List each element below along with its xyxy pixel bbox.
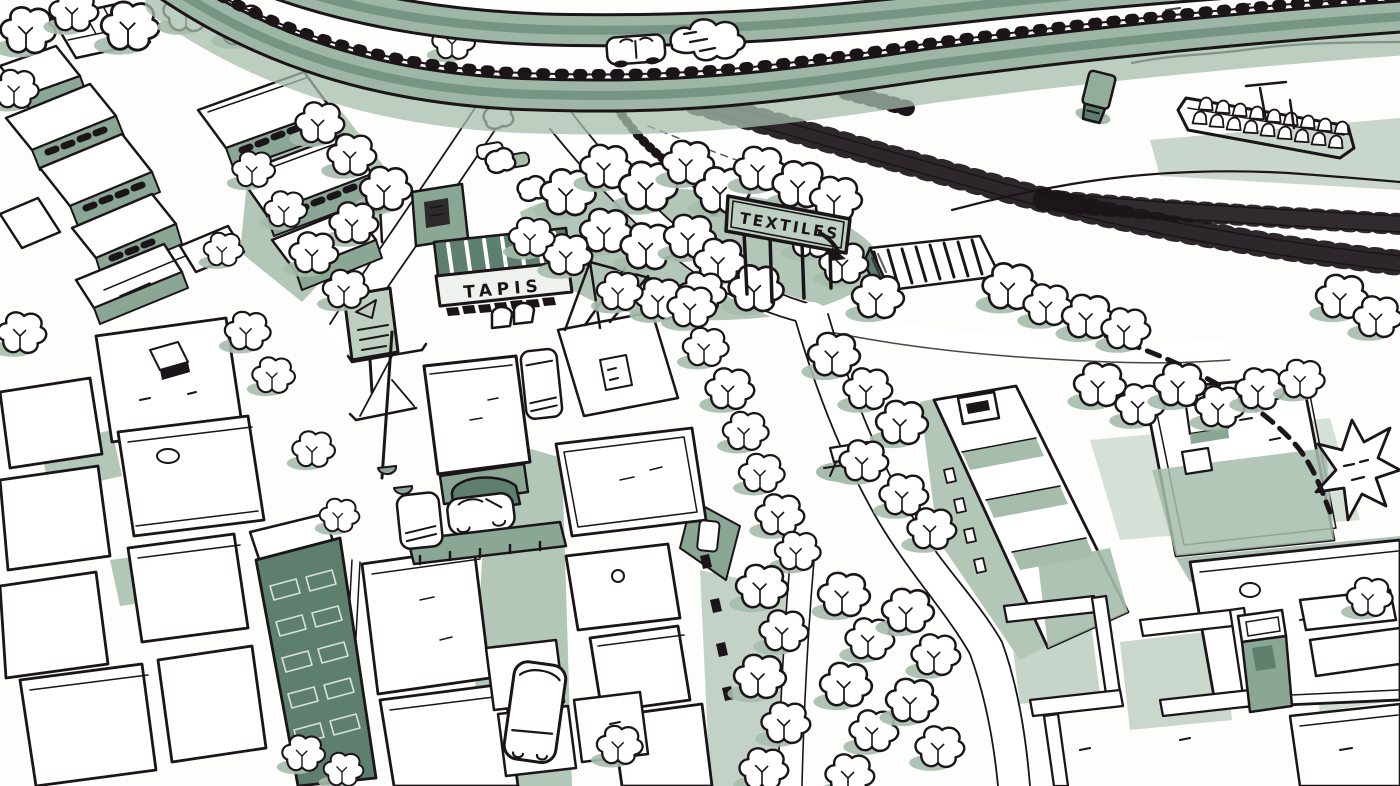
illustration: TAPIS [0, 0, 1400, 786]
parked-van [396, 492, 443, 550]
semi-truck [424, 356, 530, 512]
aerial-sketch-canvas: TAPIS [0, 0, 1400, 786]
tiny-truck [697, 520, 720, 552]
tall-van [520, 348, 563, 419]
